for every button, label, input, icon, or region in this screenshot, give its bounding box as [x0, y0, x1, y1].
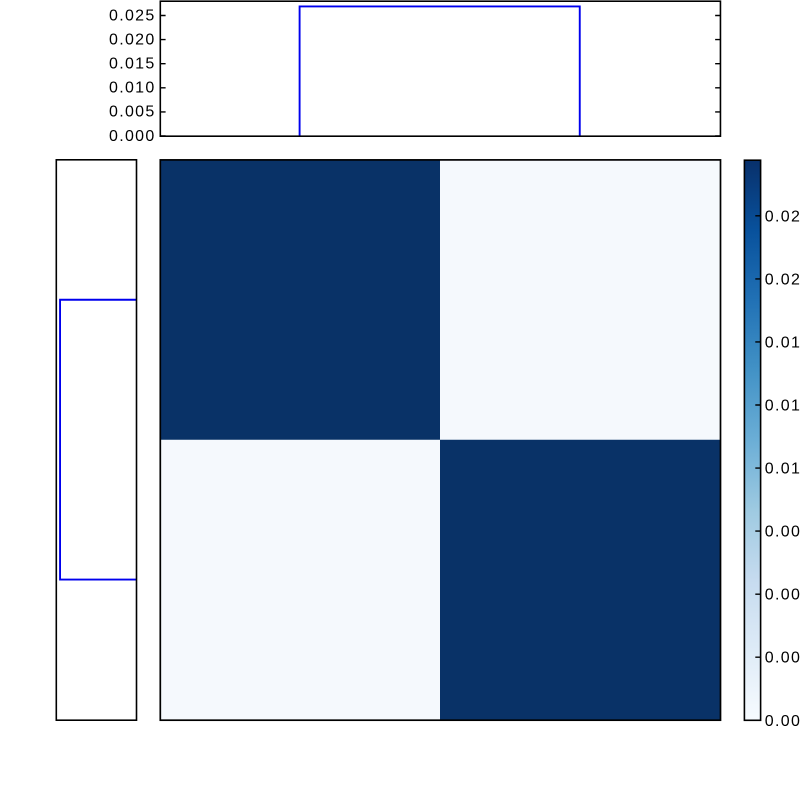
- svg-text:0.006: 0.006: [765, 587, 800, 604]
- svg-text:0.021: 0.021: [765, 271, 800, 288]
- svg-text:0.003: 0.003: [765, 650, 800, 667]
- svg-text:0.025: 0.025: [109, 7, 156, 24]
- svg-text:0.024: 0.024: [765, 208, 800, 225]
- svg-text:0.012: 0.012: [765, 461, 800, 478]
- svg-text:0.015: 0.015: [765, 398, 800, 415]
- svg-text:0.020: 0.020: [109, 31, 156, 48]
- svg-text:0.000: 0.000: [109, 128, 156, 145]
- svg-text:0.009: 0.009: [765, 524, 800, 541]
- svg-text:0.000: 0.000: [765, 713, 800, 730]
- svg-text:0.010: 0.010: [109, 80, 156, 97]
- svg-text:0.015: 0.015: [109, 55, 156, 72]
- svg-text:0.005: 0.005: [109, 104, 156, 121]
- svg-text:0.018: 0.018: [765, 334, 800, 351]
